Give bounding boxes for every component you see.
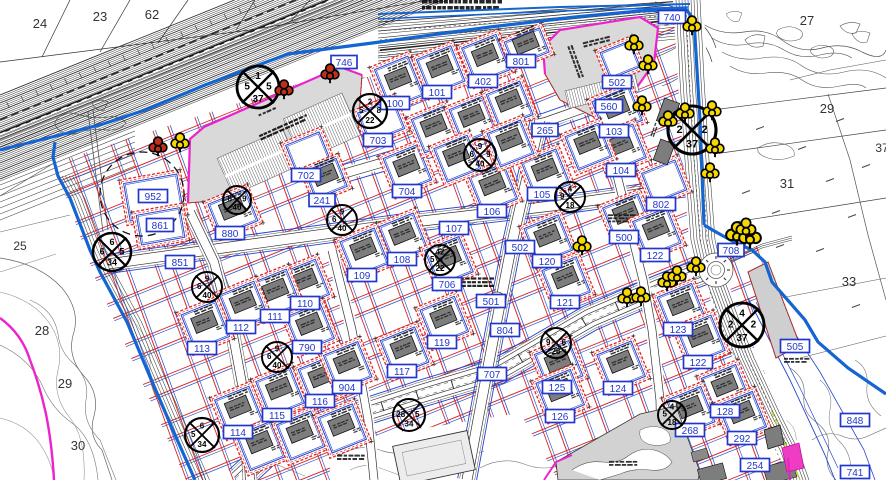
svg-text:802: 802 — [653, 200, 670, 211]
svg-text:37: 37 — [252, 94, 264, 105]
svg-text:100: 100 — [387, 99, 404, 110]
svg-text:37: 37 — [875, 141, 886, 155]
svg-text:116: 116 — [312, 397, 328, 408]
svg-text:502: 502 — [512, 243, 529, 254]
svg-text:40: 40 — [233, 203, 242, 212]
svg-text:106: 106 — [484, 207, 501, 218]
svg-text:2: 2 — [701, 124, 707, 136]
svg-text:9: 9 — [478, 142, 483, 151]
svg-text:9: 9 — [205, 274, 210, 283]
svg-text:801: 801 — [513, 57, 530, 68]
svg-text:2: 2 — [728, 320, 734, 331]
svg-text:5: 5 — [430, 255, 435, 264]
svg-text:117: 117 — [394, 367, 410, 378]
svg-text:2: 2 — [751, 320, 757, 331]
svg-text:108: 108 — [394, 255, 411, 266]
svg-text:104: 104 — [613, 166, 630, 177]
svg-text:28: 28 — [35, 323, 49, 338]
svg-text:1: 1 — [255, 71, 261, 82]
svg-text:740: 740 — [664, 13, 681, 24]
svg-text:111: 111 — [267, 312, 283, 323]
svg-text:27: 27 — [800, 13, 814, 28]
svg-text:254: 254 — [747, 461, 764, 472]
svg-text:8: 8 — [377, 106, 382, 115]
svg-text:34: 34 — [198, 440, 207, 449]
svg-text:126: 126 — [552, 412, 569, 423]
svg-text:706: 706 — [439, 280, 456, 291]
svg-text:121: 121 — [557, 298, 574, 309]
svg-text:33: 33 — [842, 274, 856, 289]
svg-text:9: 9 — [560, 192, 565, 201]
svg-text:105: 105 — [534, 190, 551, 201]
svg-text:292: 292 — [734, 434, 751, 445]
svg-text:22: 22 — [366, 116, 375, 125]
svg-text:42: 42 — [436, 247, 445, 256]
svg-text:123: 123 — [670, 325, 687, 336]
svg-text:500: 500 — [616, 233, 633, 244]
svg-text:880: 880 — [222, 229, 239, 240]
svg-text:125: 125 — [549, 383, 566, 394]
svg-text:115: 115 — [269, 411, 285, 422]
svg-text:502: 502 — [609, 78, 626, 89]
svg-text:746: 746 — [336, 58, 353, 69]
svg-text:29: 29 — [58, 376, 72, 391]
svg-text:28: 28 — [396, 410, 405, 419]
svg-text:6: 6 — [562, 338, 567, 347]
svg-text:6: 6 — [197, 282, 202, 291]
svg-text:101: 101 — [429, 88, 446, 99]
svg-text:790: 790 — [299, 343, 316, 354]
svg-text:4: 4 — [739, 309, 745, 320]
svg-text:702: 702 — [298, 171, 315, 182]
svg-text:29: 29 — [820, 101, 834, 116]
svg-text:9: 9 — [275, 344, 280, 353]
svg-text:402: 402 — [475, 77, 492, 88]
svg-text:34: 34 — [107, 258, 117, 268]
svg-text:5: 5 — [119, 246, 124, 256]
svg-text:62: 62 — [145, 7, 159, 22]
svg-text:861: 861 — [152, 221, 169, 232]
svg-text:851: 851 — [172, 258, 189, 269]
svg-text:114: 114 — [230, 428, 246, 439]
svg-text:124: 124 — [610, 384, 627, 395]
svg-text:6: 6 — [109, 237, 114, 247]
svg-text:9: 9 — [340, 207, 345, 216]
svg-text:560: 560 — [601, 102, 618, 113]
svg-text:5: 5 — [359, 106, 364, 115]
svg-text:9: 9 — [546, 338, 551, 347]
svg-text:113: 113 — [194, 344, 210, 355]
svg-text:741: 741 — [847, 468, 864, 479]
svg-text:23: 23 — [93, 9, 107, 24]
svg-text:120: 120 — [539, 257, 556, 268]
svg-text:501: 501 — [483, 297, 500, 308]
svg-text:103: 103 — [606, 127, 623, 138]
svg-text:268: 268 — [682, 426, 699, 437]
svg-text:4: 4 — [568, 184, 573, 193]
svg-text:122: 122 — [647, 251, 664, 262]
svg-text:5: 5 — [415, 410, 420, 419]
svg-text:904: 904 — [339, 383, 356, 394]
svg-text:2: 2 — [368, 98, 373, 107]
svg-text:34: 34 — [405, 420, 414, 429]
svg-text:9: 9 — [486, 150, 491, 159]
svg-text:708: 708 — [723, 246, 740, 257]
svg-text:6: 6 — [332, 215, 337, 224]
svg-text:6: 6 — [469, 150, 474, 159]
svg-text:40: 40 — [273, 361, 282, 370]
svg-text:5: 5 — [191, 430, 196, 439]
svg-text:5: 5 — [244, 82, 250, 93]
svg-text:9: 9 — [242, 195, 247, 204]
svg-text:505: 505 — [787, 342, 804, 353]
svg-text:848: 848 — [847, 416, 864, 427]
svg-text:6: 6 — [200, 422, 205, 431]
svg-text:804: 804 — [497, 326, 514, 337]
svg-text:18: 18 — [566, 201, 575, 210]
svg-text:28: 28 — [552, 347, 561, 356]
svg-text:703: 703 — [370, 136, 387, 147]
svg-text:24: 24 — [33, 16, 47, 31]
svg-text:4: 4 — [670, 403, 675, 412]
svg-text:704: 704 — [399, 187, 416, 198]
svg-text:119: 119 — [434, 338, 450, 349]
svg-text:952: 952 — [145, 192, 162, 203]
svg-text:241: 241 — [314, 196, 331, 207]
svg-text:31: 31 — [780, 176, 794, 191]
svg-text:112: 112 — [233, 323, 249, 334]
svg-text:122: 122 — [690, 358, 707, 369]
svg-text:265: 265 — [537, 126, 554, 137]
svg-text:40: 40 — [338, 224, 347, 233]
svg-text:25: 25 — [13, 239, 27, 253]
svg-text:40: 40 — [203, 291, 212, 300]
svg-text:22: 22 — [436, 264, 445, 273]
svg-text:6: 6 — [100, 246, 105, 256]
svg-text:107: 107 — [446, 224, 463, 235]
svg-text:109: 109 — [354, 271, 371, 282]
svg-text:6: 6 — [267, 352, 272, 361]
svg-text:5: 5 — [266, 82, 272, 93]
svg-text:707: 707 — [484, 370, 501, 381]
svg-text:37: 37 — [686, 138, 698, 150]
svg-text:37: 37 — [736, 333, 748, 344]
svg-text:110: 110 — [297, 299, 313, 310]
svg-text:40: 40 — [476, 160, 485, 169]
svg-text:128: 128 — [717, 407, 734, 418]
svg-text:2: 2 — [676, 124, 682, 136]
svg-text:18: 18 — [668, 418, 677, 427]
